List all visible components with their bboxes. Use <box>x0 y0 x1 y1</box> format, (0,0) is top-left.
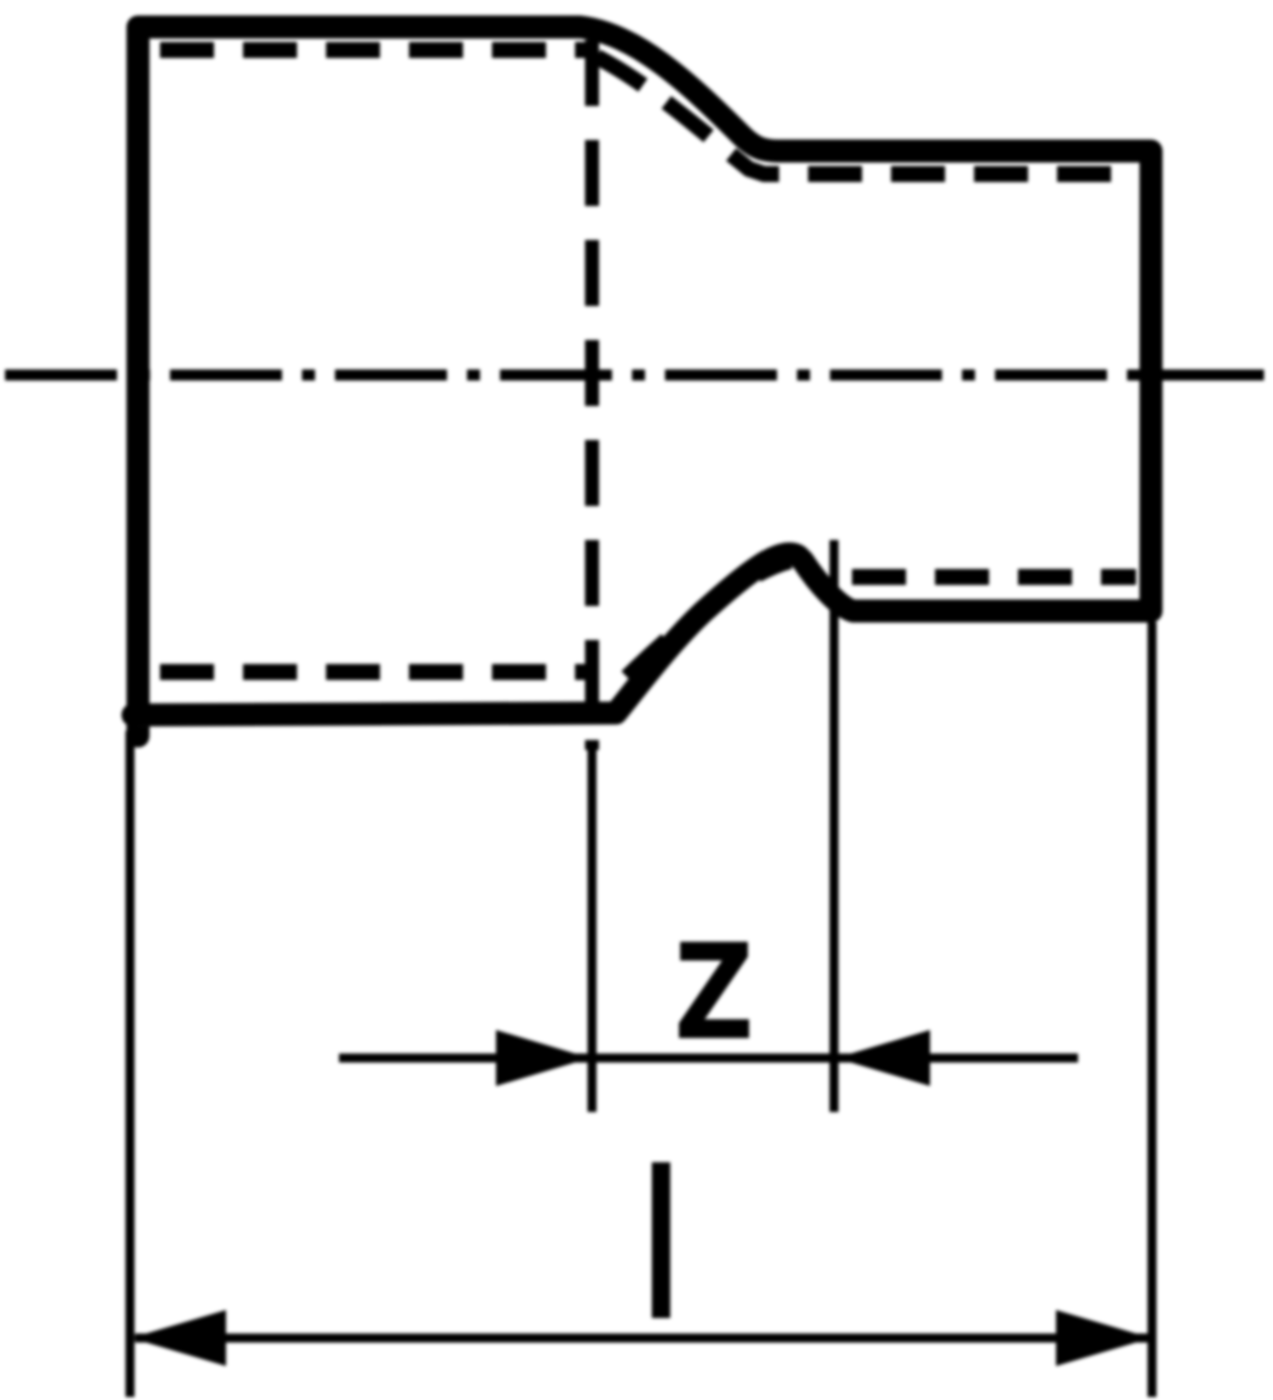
reducer-outline <box>133 27 1151 736</box>
z-dimension-label: Z <box>674 916 754 1070</box>
l-dimension-label: l <box>633 1129 690 1367</box>
drawing-canvas: Z l <box>0 0 1273 1400</box>
l-arrowhead-right <box>1056 1310 1151 1366</box>
z-arrowhead-right <box>836 1030 930 1086</box>
reducer-technical-drawing: Z l <box>0 0 1273 1400</box>
z-arrowhead-left <box>496 1030 590 1086</box>
l-arrowhead-left <box>131 1310 226 1366</box>
